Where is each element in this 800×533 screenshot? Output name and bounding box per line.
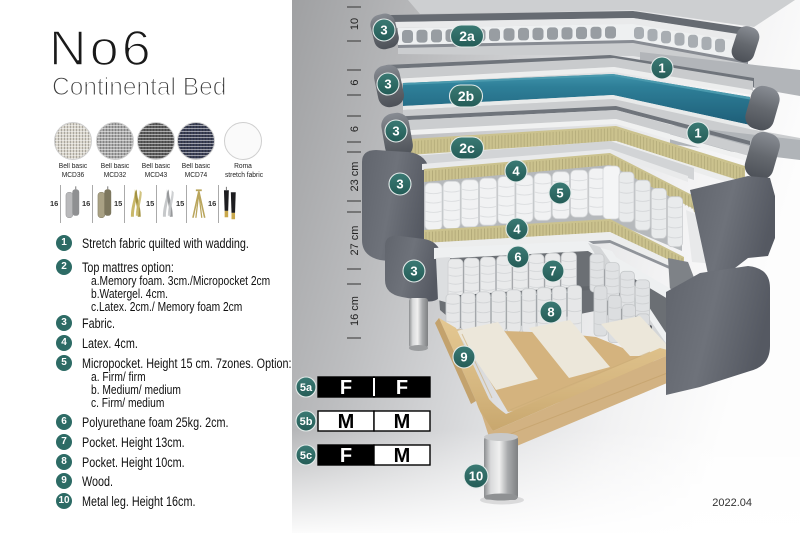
svg-text:16 cm: 16 cm bbox=[349, 296, 361, 326]
svg-text:2b: 2b bbox=[458, 88, 474, 104]
svg-text:9: 9 bbox=[460, 350, 467, 365]
svg-text:10: 10 bbox=[469, 469, 483, 484]
svg-text:3: 3 bbox=[396, 177, 403, 192]
svg-text:1: 1 bbox=[694, 126, 701, 141]
svg-text:M: M bbox=[394, 411, 411, 433]
svg-text:5b: 5b bbox=[300, 416, 313, 428]
svg-text:6: 6 bbox=[349, 79, 361, 85]
svg-text:27 cm: 27 cm bbox=[349, 226, 361, 256]
svg-text:4: 4 bbox=[512, 164, 520, 179]
svg-text:2c: 2c bbox=[459, 140, 475, 156]
svg-text:5c: 5c bbox=[300, 450, 312, 462]
svg-text:2a: 2a bbox=[459, 28, 475, 44]
svg-text:6: 6 bbox=[349, 126, 361, 132]
svg-text:10: 10 bbox=[349, 18, 361, 30]
svg-text:5: 5 bbox=[556, 186, 563, 201]
svg-text:23 cm: 23 cm bbox=[349, 162, 361, 192]
svg-text:3: 3 bbox=[384, 77, 391, 92]
svg-text:4: 4 bbox=[513, 222, 521, 237]
svg-text:5a: 5a bbox=[300, 382, 313, 394]
svg-text:8: 8 bbox=[547, 305, 554, 320]
svg-text:7: 7 bbox=[549, 264, 556, 279]
svg-text:3: 3 bbox=[392, 124, 399, 139]
svg-text:M: M bbox=[394, 445, 411, 467]
svg-text:F: F bbox=[340, 377, 352, 399]
svg-text:2022.04: 2022.04 bbox=[712, 497, 752, 509]
svg-text:F: F bbox=[340, 445, 352, 467]
svg-text:3: 3 bbox=[410, 264, 417, 279]
svg-text:M: M bbox=[338, 411, 355, 433]
svg-text:3: 3 bbox=[380, 23, 387, 38]
svg-text:F: F bbox=[396, 377, 408, 399]
svg-text:1: 1 bbox=[658, 61, 665, 76]
svg-text:6: 6 bbox=[514, 250, 521, 265]
